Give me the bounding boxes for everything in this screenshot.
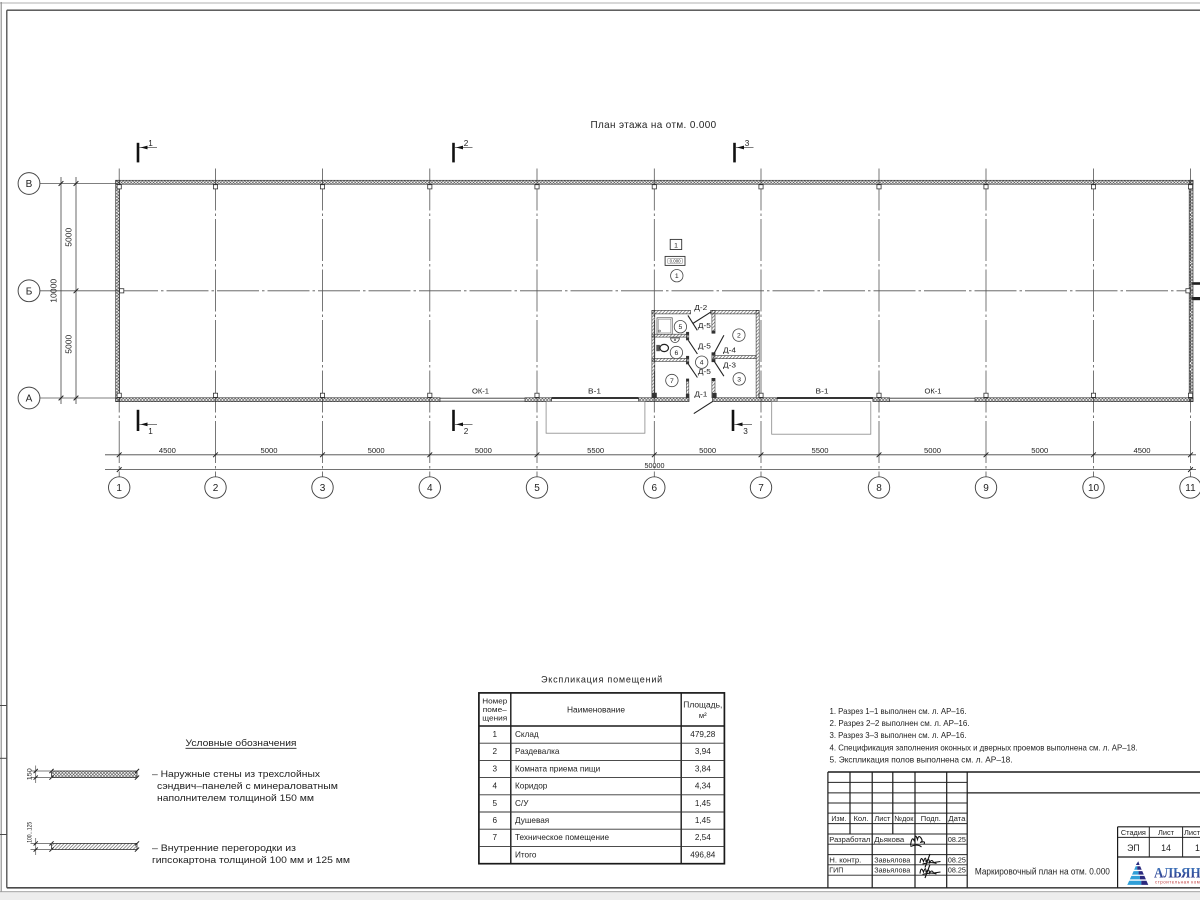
- svg-text:Раздевалка: Раздевалка: [515, 747, 560, 756]
- svg-text:5000: 5000: [65, 227, 74, 247]
- svg-text:Площадь,: Площадь,: [683, 701, 722, 710]
- svg-text:м²: м²: [699, 711, 707, 720]
- svg-text:ЭП: ЭП: [1127, 843, 1140, 853]
- svg-text:6: 6: [652, 483, 658, 494]
- svg-text:1: 1: [148, 139, 153, 148]
- svg-text:Завьялова: Завьялова: [874, 868, 910, 875]
- svg-text:1. Разрез 1–1 выполнен см. л.: 1. Разрез 1–1 выполнен см. л. АР–16.: [830, 706, 967, 716]
- svg-text:3. Разрез 3–3 выполнен см. л.: 3. Разрез 3–3 выполнен см. л. АР–16.: [830, 730, 967, 740]
- svg-text:3: 3: [493, 764, 498, 773]
- svg-text:1,45: 1,45: [695, 816, 711, 825]
- svg-text:Д-4: Д-4: [723, 346, 736, 355]
- svg-text:5. Экспликация полов выполнена: 5. Экспликация полов выполнена см. л. АР…: [830, 754, 1013, 764]
- svg-text:Стадия: Стадия: [1121, 828, 1146, 837]
- svg-text:Д-5: Д-5: [698, 367, 711, 376]
- svg-text:08.25: 08.25: [948, 868, 966, 875]
- svg-text:1: 1: [675, 273, 679, 280]
- svg-text:4500: 4500: [159, 446, 176, 455]
- svg-text:9: 9: [983, 483, 989, 494]
- svg-text:Коридор: Коридор: [515, 782, 548, 791]
- svg-text:0.000: 0.000: [670, 258, 681, 263]
- svg-text:5000: 5000: [924, 446, 941, 455]
- svg-text:наполнителем толщиной 150 мм: наполнителем толщиной 150 мм: [157, 793, 314, 803]
- svg-text:1,45: 1,45: [695, 799, 711, 808]
- svg-text:Д-5: Д-5: [698, 321, 711, 330]
- svg-text:Завьялова: Завьялова: [874, 857, 910, 864]
- svg-text:Д-2: Д-2: [694, 303, 707, 312]
- svg-text:Дьякова: Дьякова: [874, 837, 904, 844]
- svg-text:1: 1: [1195, 843, 1200, 853]
- svg-text:5000: 5000: [1031, 446, 1048, 455]
- svg-text:1: 1: [493, 730, 498, 739]
- svg-text:2: 2: [464, 427, 469, 436]
- svg-text:Д-3: Д-3: [723, 361, 736, 370]
- svg-text:08.25: 08.25: [948, 857, 966, 864]
- svg-text:гипсокартона толщиной 100 мм и: гипсокартона толщиной 100 мм и 125 мм: [152, 855, 350, 865]
- svg-text:3: 3: [745, 139, 750, 148]
- svg-text:4,34: 4,34: [695, 782, 711, 791]
- svg-text:3: 3: [320, 483, 326, 494]
- svg-text:С/У: С/У: [515, 799, 529, 808]
- svg-text:4. Спецификация заполнения око: 4. Спецификация заполнения оконных и две…: [830, 742, 1138, 752]
- svg-text:50000: 50000: [645, 461, 665, 470]
- svg-text:5: 5: [679, 324, 683, 331]
- svg-text:11: 11: [1185, 483, 1196, 494]
- svg-text:№док: №док: [894, 814, 914, 823]
- svg-text:5000: 5000: [475, 446, 492, 455]
- svg-text:Итого: Итого: [515, 850, 537, 859]
- svg-text:5000: 5000: [65, 334, 74, 354]
- svg-text:1: 1: [116, 483, 122, 494]
- svg-text:Кол.: Кол.: [854, 814, 869, 823]
- svg-text:4: 4: [427, 483, 433, 494]
- svg-text:Н. контр.: Н. контр.: [829, 857, 861, 864]
- svg-text:Лист: Лист: [1158, 828, 1175, 837]
- svg-text:В-1: В-1: [588, 389, 601, 396]
- svg-text:1: 1: [148, 427, 153, 436]
- svg-text:14: 14: [1161, 843, 1171, 853]
- svg-text:– Внутренние перегородки из: – Внутренние перегородки из: [152, 843, 296, 853]
- svg-text:7: 7: [493, 833, 498, 842]
- svg-text:5: 5: [534, 483, 540, 494]
- svg-text:Изм.: Изм.: [831, 814, 846, 823]
- svg-text:5500: 5500: [812, 446, 829, 455]
- svg-text:3,84: 3,84: [695, 764, 711, 773]
- svg-text:3: 3: [737, 376, 741, 383]
- svg-text:5000: 5000: [699, 446, 716, 455]
- svg-text:2: 2: [737, 333, 741, 340]
- svg-text:ОК-1: ОК-1: [925, 389, 942, 396]
- svg-text:3: 3: [743, 427, 748, 436]
- svg-text:Д-5: Д-5: [698, 342, 711, 351]
- svg-text:Наименование: Наименование: [567, 706, 626, 715]
- svg-text:Лист: Лист: [874, 814, 891, 823]
- svg-text:Б: Б: [26, 286, 33, 297]
- svg-text:сэндвич–панелей с минераловатн: сэндвич–панелей с минераловатным: [157, 781, 338, 791]
- svg-text:Разработал: Разработал: [829, 836, 870, 844]
- svg-text:4: 4: [493, 782, 498, 791]
- svg-text:Листов: Листов: [1184, 828, 1200, 837]
- svg-text:Склад: Склад: [515, 730, 539, 739]
- svg-text:2: 2: [493, 747, 498, 756]
- svg-text:– Наружные стены из трехслойны: – Наружные стены из трехслойных: [152, 769, 321, 779]
- svg-text:5000: 5000: [368, 446, 385, 455]
- svg-text:4: 4: [700, 360, 704, 367]
- svg-text:496,84: 496,84: [690, 850, 715, 859]
- svg-text:08.25: 08.25: [948, 837, 966, 844]
- svg-text:100...125: 100...125: [27, 821, 34, 842]
- svg-text:Душевая: Душевая: [515, 816, 549, 825]
- svg-text:5: 5: [493, 799, 498, 808]
- svg-text:10: 10: [1088, 483, 1100, 494]
- svg-text:7: 7: [758, 483, 764, 494]
- svg-text:3,94: 3,94: [695, 747, 711, 756]
- svg-text:Маркировочный план на отм. 0.0: Маркировочный план на отм. 0.000: [975, 867, 1110, 877]
- svg-text:Условные обозначения: Условные обозначения: [186, 738, 297, 748]
- svg-text:150: 150: [27, 768, 34, 780]
- svg-text:Комната приема пищи: Комната приема пищи: [515, 764, 600, 773]
- svg-text:4500: 4500: [1134, 446, 1151, 455]
- svg-text:6: 6: [493, 816, 498, 825]
- svg-text:2. Разрез 2–2 выполнен см. л.: 2. Разрез 2–2 выполнен см. л. АР–16.: [830, 718, 970, 728]
- svg-text:2,54: 2,54: [695, 833, 711, 842]
- svg-text:479,28: 479,28: [690, 730, 715, 739]
- svg-text:8: 8: [876, 483, 882, 494]
- svg-text:План этажа на отм. 0.000: План этажа на отм. 0.000: [591, 120, 717, 131]
- svg-text:Д-1: Д-1: [694, 389, 707, 398]
- svg-text:7: 7: [670, 378, 674, 385]
- svg-text:Экспликация помещений: Экспликация помещений: [541, 674, 663, 685]
- svg-text:5500: 5500: [587, 446, 604, 455]
- svg-text:щения: щения: [482, 713, 507, 722]
- svg-text:Дата: Дата: [948, 814, 966, 823]
- svg-text:5000: 5000: [261, 446, 278, 455]
- svg-text:6: 6: [675, 350, 679, 357]
- svg-text:В: В: [26, 179, 33, 190]
- svg-text:В-1: В-1: [816, 389, 829, 396]
- svg-text:10000: 10000: [50, 278, 59, 303]
- svg-text:А: А: [26, 394, 33, 405]
- svg-text:Подп.: Подп.: [921, 814, 941, 823]
- svg-text:ГИП: ГИП: [829, 868, 843, 875]
- svg-text:ОК-1: ОК-1: [472, 389, 489, 396]
- svg-text:1: 1: [674, 242, 678, 249]
- svg-text:2: 2: [464, 139, 469, 148]
- svg-text:2: 2: [213, 483, 219, 494]
- svg-text:Техническое помещение: Техническое помещение: [515, 833, 610, 842]
- svg-text:строительная компания: строительная компания: [1155, 880, 1200, 885]
